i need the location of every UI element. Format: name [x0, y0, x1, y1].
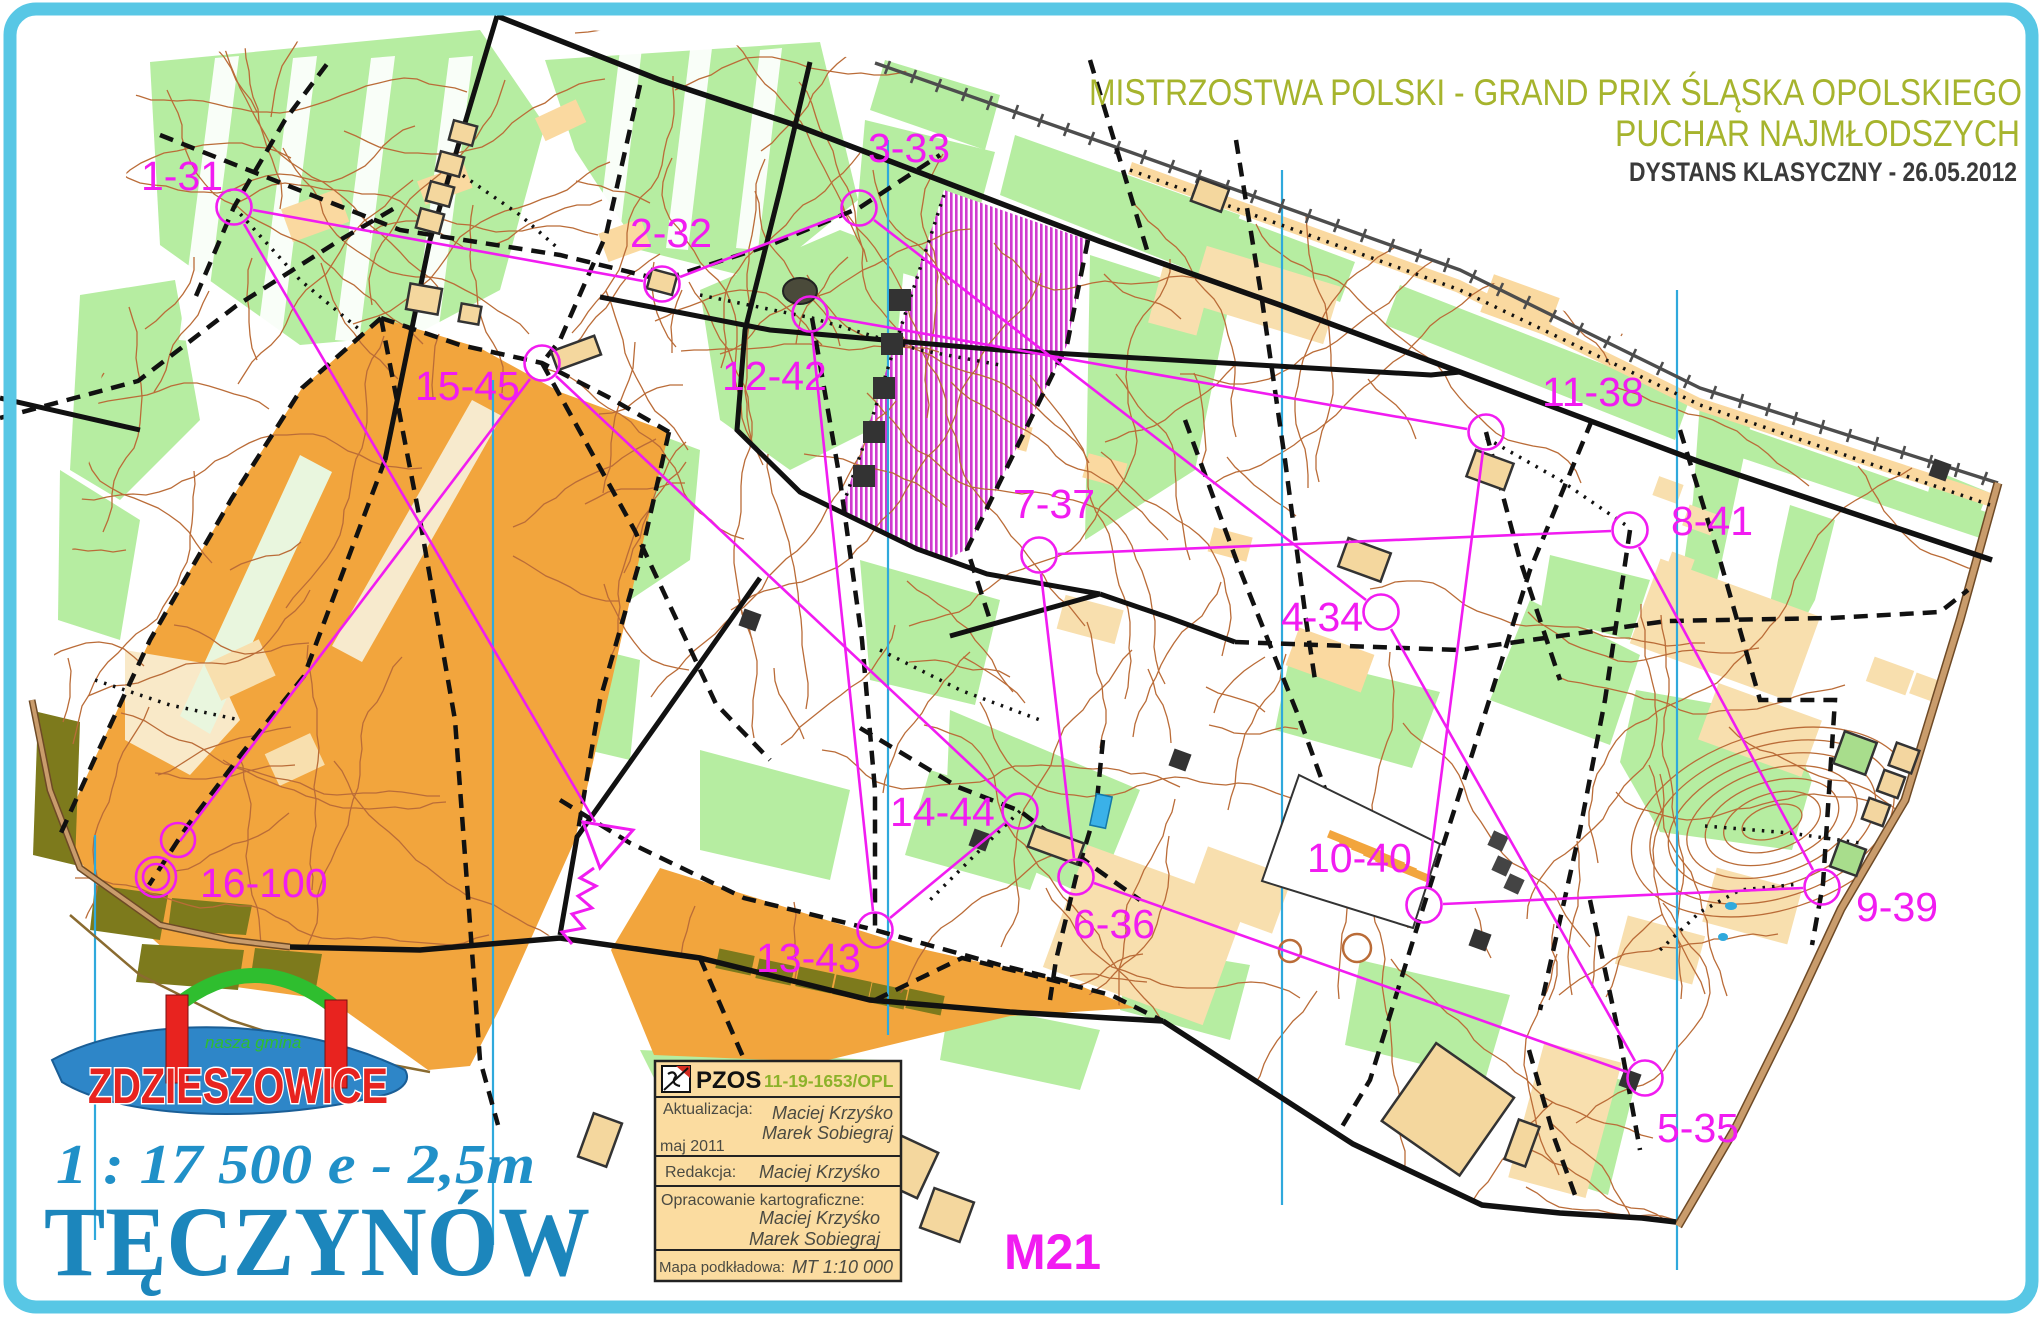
svg-text:Mapa podkładowa:: Mapa podkładowa: [659, 1259, 785, 1276]
svg-text:11-38: 11-38 [1542, 369, 1644, 415]
svg-text:13-43: 13-43 [756, 935, 861, 981]
svg-text:16-100: 16-100 [200, 860, 328, 906]
svg-text:Maciej Krzyśko: Maciej Krzyśko [759, 1208, 880, 1228]
svg-text:Marek Sobiegraj: Marek Sobiegraj [762, 1123, 894, 1143]
svg-text:MT 1:10 000: MT 1:10 000 [792, 1257, 893, 1277]
svg-text:DYSTANS KLASYCZNY - 26.05.2012: DYSTANS KLASYCZNY - 26.05.2012 [1629, 157, 2017, 187]
svg-text:14-44: 14-44 [890, 789, 995, 835]
svg-text:6-36: 6-36 [1073, 901, 1155, 947]
svg-text:Marek Sobiegraj: Marek Sobiegraj [749, 1229, 881, 1249]
svg-text:MISTRZOSTWA POLSKI - GRAND PRI: MISTRZOSTWA POLSKI - GRAND PRIX ŚLĄSKA O… [1089, 71, 2022, 113]
svg-text:M21: M21 [1004, 1224, 1101, 1280]
svg-text:7-37: 7-37 [1013, 481, 1095, 527]
svg-text:11-19-1653/OPL: 11-19-1653/OPL [764, 1071, 894, 1091]
svg-text:1-31: 1-31 [141, 153, 223, 199]
svg-text:PUCHAR NAJMŁODSZYCH: PUCHAR NAJMŁODSZYCH [1615, 113, 2020, 154]
svg-text:Opracowanie kartograficzne:: Opracowanie kartograficzne: [661, 1192, 865, 1209]
svg-text:nasza gmina: nasza gmina [205, 1033, 301, 1052]
svg-text:ZDZIESZOWICE: ZDZIESZOWICE [88, 1058, 388, 1114]
svg-text:9-39: 9-39 [1856, 884, 1938, 930]
svg-text:4-34: 4-34 [1281, 594, 1363, 640]
svg-text:2-32: 2-32 [630, 210, 712, 256]
svg-text:maj 2011: maj 2011 [660, 1138, 725, 1155]
svg-text:3-33: 3-33 [868, 125, 950, 171]
svg-text:Aktualizacja:: Aktualizacja: [663, 1101, 753, 1118]
svg-text:Maciej Krzyśko: Maciej Krzyśko [759, 1162, 880, 1182]
svg-text:5-35: 5-35 [1657, 1105, 1739, 1151]
svg-text:Maciej Krzyśko: Maciej Krzyśko [772, 1103, 893, 1123]
svg-text:Redakcja:: Redakcja: [665, 1164, 736, 1181]
svg-text:12-42: 12-42 [722, 353, 827, 399]
svg-text:10-40: 10-40 [1307, 835, 1412, 881]
svg-text:8-41: 8-41 [1671, 498, 1753, 544]
svg-text:15-45: 15-45 [415, 363, 520, 409]
svg-text:PZOS: PZOS [696, 1067, 761, 1094]
svg-text:TĘCZYNÓW: TĘCZYNÓW [44, 1186, 590, 1297]
